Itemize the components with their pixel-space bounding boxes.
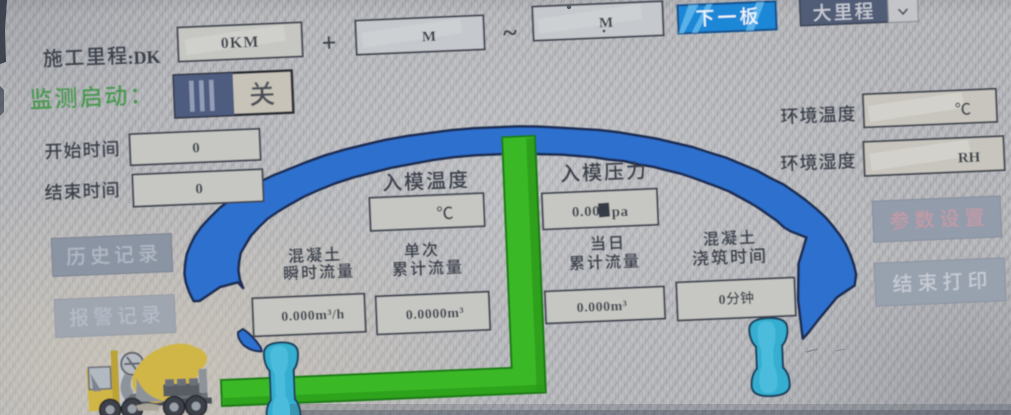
svg-text:0.000m³/h: 0.000m³/h [281, 308, 345, 326]
svg-text:pa: pa [611, 204, 628, 221]
svg-text:M: M [599, 15, 614, 32]
svg-text:RH: RH [957, 150, 980, 167]
svg-text:0.00: 0.00 [572, 204, 601, 221]
svg-text:0.000m³: 0.000m³ [576, 299, 627, 316]
svg-text:0: 0 [195, 181, 203, 197]
svg-text:0: 0 [718, 293, 726, 308]
svg-text:0: 0 [192, 140, 200, 156]
svg-text::DK: :DK [127, 47, 161, 68]
svg-text:M: M [422, 29, 437, 46]
svg-text:~: ~ [503, 18, 518, 48]
svg-text:+: + [321, 28, 337, 58]
svg-text:0.0000m³: 0.0000m³ [406, 306, 465, 323]
svg-text:0KM: 0KM [220, 34, 259, 53]
